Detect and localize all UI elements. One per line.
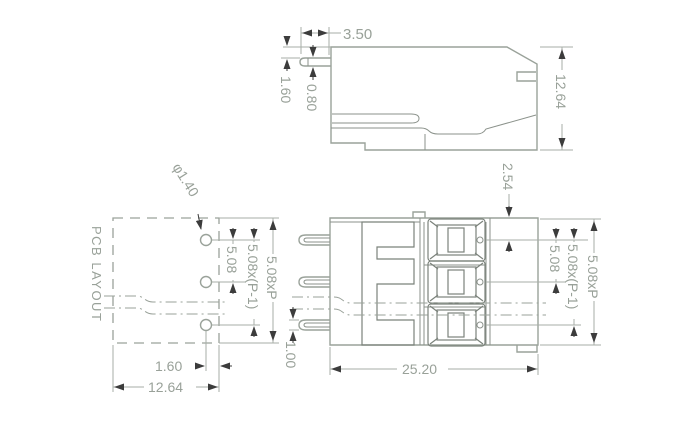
pcb-hole-3 [201,320,212,331]
dim-label-pole-pitch-span: 5.08x(P-1) [565,244,581,309]
dim-label-body-height: 12.64 [553,74,569,109]
funnel-3 [428,304,485,346]
dim-label-pole-pitch: 5.08 [547,245,563,272]
dim-label-pin-top-offset: 1.60 [278,76,294,103]
pcb-layout-title: PCB LAYOUT [89,226,104,322]
technical-drawing-canvas: 3.50 1.60 0.80 12.64 PCB LAYOUT φ1.40 5.… [0,0,680,440]
funnel-1 [428,219,485,261]
pcb-hole-1 [201,235,212,246]
dim-label-body-width: 25.20 [402,361,437,377]
funnel-2 [428,261,485,303]
pcb-layout-dimensions: φ1.40 5.08 5.08x(P-1) 5.08xP 1.60 12.64 [113,160,281,395]
dim-label-pin-thickness: 0.80 [304,84,320,111]
solder-pins [299,235,330,330]
terminal-block-drawing: 3.50 1.60 0.80 12.64 PCB LAYOUT φ1.40 5.… [0,0,680,440]
dim-label-pcb-pitch-span: 5.08x(P-1) [245,244,261,309]
pcb-hole-2 [201,277,212,288]
dim-label-body-span: 5.08xP [585,255,601,299]
pcb-layout-view: PCB LAYOUT [89,218,228,343]
dim-label-pin-width: 1.00 [283,341,299,368]
dim-label-hole-diameter: φ1.40 [169,160,202,199]
dim-label-pin-length: 3.50 [343,26,372,43]
side-view-dimensions: 3.50 1.60 0.80 12.64 [278,26,573,150]
dim-label-pcb-edge-offset: 1.60 [155,358,182,374]
side-view [300,47,537,150]
dim-label-pcb-pattern-width: 12.64 [148,379,183,395]
dim-label-pcb-pattern-height: 5.08xP [264,256,280,300]
dim-label-pcb-pitch: 5.08 [224,246,240,273]
dim-label-first-pole-offset: 2.54 [500,163,516,190]
wire-entry-funnels [428,219,485,346]
